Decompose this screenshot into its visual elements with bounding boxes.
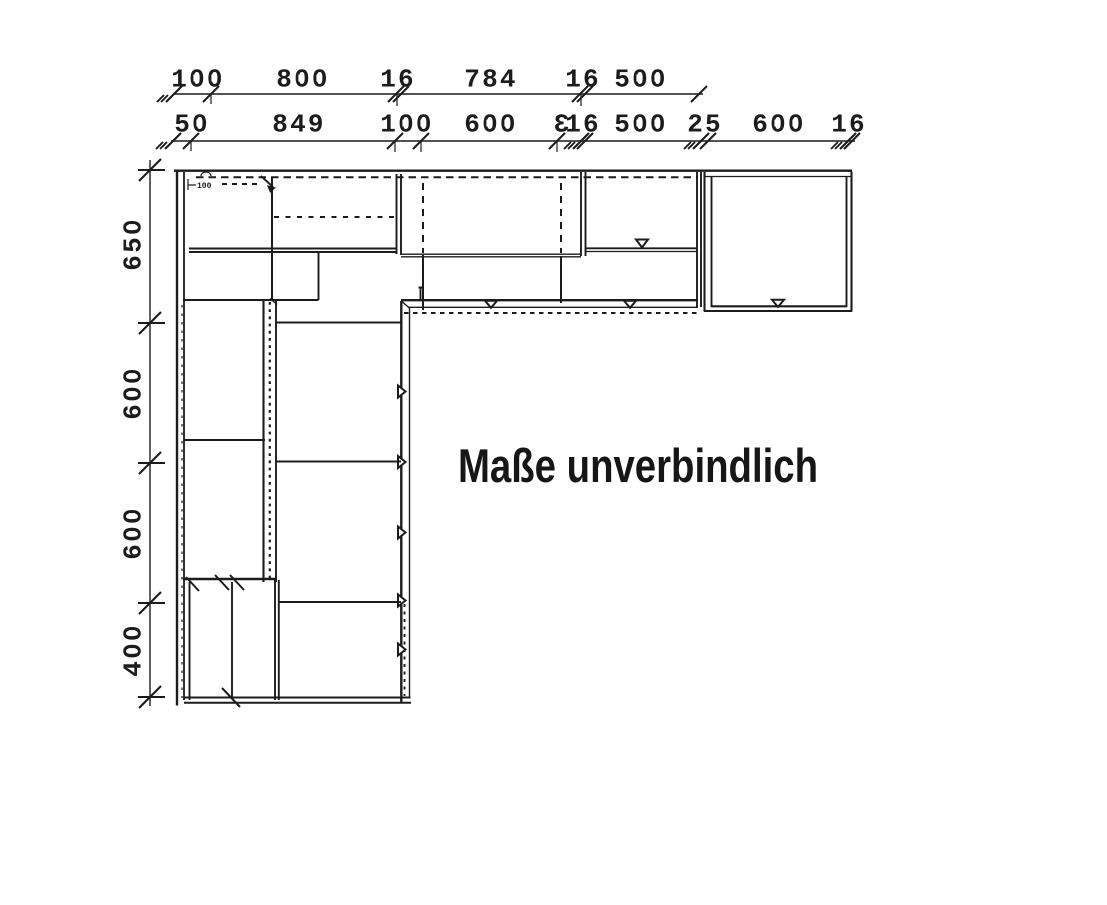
svg-text:16: 16 bbox=[831, 110, 867, 140]
svg-text:50: 50 bbox=[174, 110, 210, 140]
svg-text:849: 849 bbox=[272, 110, 325, 140]
svg-text:100: 100 bbox=[197, 182, 212, 191]
svg-text:25: 25 bbox=[687, 110, 723, 140]
svg-text:16: 16 bbox=[380, 65, 416, 95]
svg-text:16: 16 bbox=[565, 110, 601, 140]
svg-text:16: 16 bbox=[565, 65, 601, 95]
svg-text:Maße unverbindlich: Maße unverbindlich bbox=[458, 439, 818, 492]
svg-text:784: 784 bbox=[464, 65, 517, 95]
